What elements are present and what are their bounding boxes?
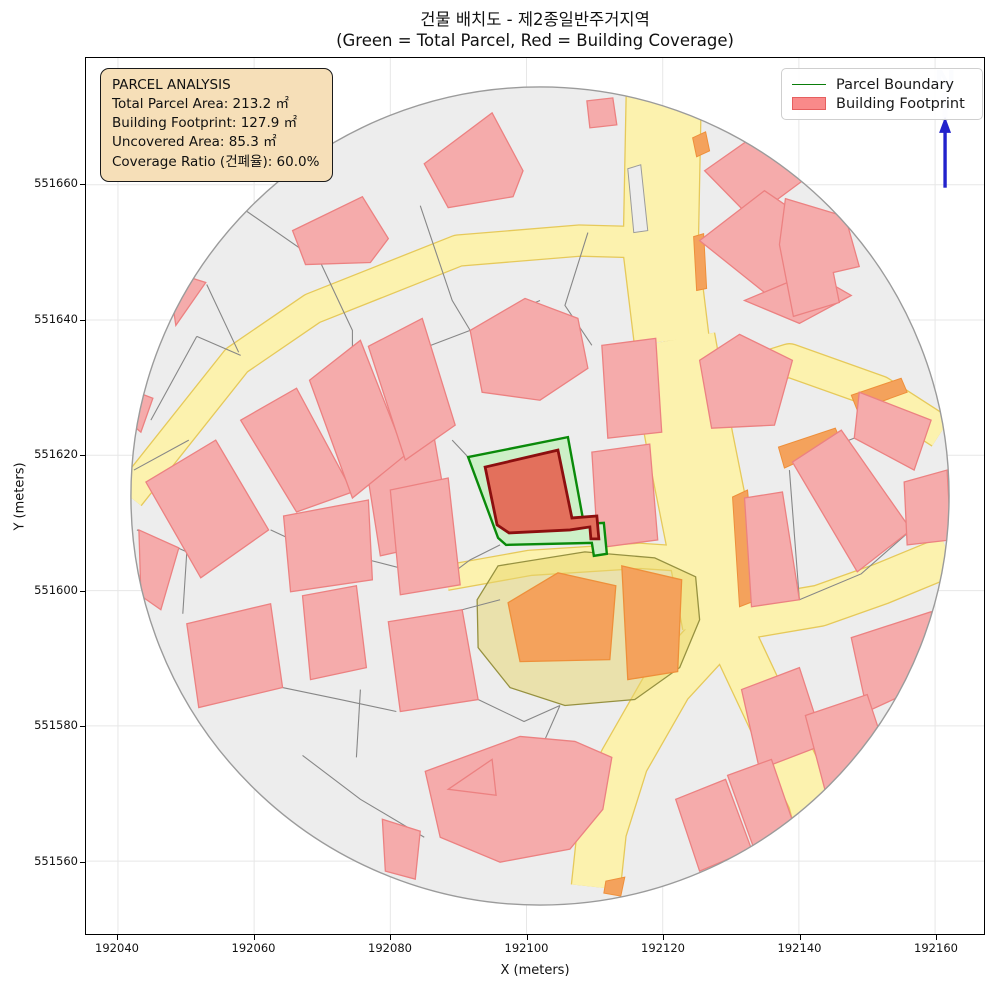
y-tick-mark [80,591,85,592]
parcel-boundary-line-swatch [792,84,826,85]
y-tick-mark [80,184,85,185]
y-tick-mark [80,320,85,321]
road [661,96,672,340]
building [904,470,951,545]
y-tick-mark [80,726,85,727]
chart-title: 건물 배치도 - 제2종일반주거지역 [85,6,985,30]
building [390,478,460,595]
x-tick-mark [117,935,118,940]
map-svg: N [86,58,984,934]
parcel-analysis-line: Uncovered Area: 85.3 ㎡ [112,133,319,152]
legend-item-building-footprint: Building Footprint [789,94,974,113]
y-axis-label: Y (meters) [13,447,28,547]
building [303,586,367,680]
y-tick-mark [80,862,85,863]
building [284,500,373,592]
legend-label: Parcel Boundary [836,77,954,93]
legend-label: Building Footprint [836,96,965,112]
x-tick-label: 192080 [350,941,430,955]
y-tick-label: 551600 [14,583,78,597]
x-tick-label: 192120 [623,941,703,955]
x-tick-mark [390,935,391,940]
x-tick-mark [527,935,528,940]
x-tick-mark [936,935,937,940]
parcel-analysis-box: PARCEL ANALYSIS Total Parcel Area: 213.2… [100,68,333,182]
figure: 건물 배치도 - 제2종일반주거지역 (Green = Total Parcel… [0,0,1001,990]
building [388,610,478,712]
x-tick-mark [254,935,255,940]
x-tick-label: 192040 [77,941,157,955]
building [602,338,662,438]
y-tick-label: 551640 [14,312,78,326]
x-tick-label: 192140 [760,941,840,955]
x-tick-mark [800,935,801,940]
plot-area: N [85,57,985,935]
building [587,98,617,128]
parcel-analysis-line: Building Footprint: 127.9 ㎡ [112,114,319,133]
parcel-analysis-line: Coverage Ratio (건폐율): 60.0% [112,153,319,172]
y-tick-label: 551560 [14,854,78,868]
x-axis-label: X (meters) [85,963,985,978]
x-tick-label: 192100 [487,941,567,955]
chart-subtitle: (Green = Total Parcel, Red = Building Co… [85,31,985,50]
legend: Parcel Boundary Building Footprint [781,68,983,120]
x-tick-label: 192160 [896,941,976,955]
y-tick-label: 551580 [14,718,78,732]
y-tick-label: 551660 [14,176,78,190]
building-footprint-patch-swatch [792,97,826,110]
parcel-analysis-lines: Total Parcel Area: 213.2 ㎡Building Footp… [112,95,319,172]
parcel-analysis-title: PARCEL ANALYSIS [112,76,319,95]
legend-item-parcel-boundary: Parcel Boundary [789,75,974,94]
orange-building [622,566,682,680]
x-tick-label: 192060 [214,941,294,955]
x-tick-mark [663,935,664,940]
parcel-analysis-line: Total Parcel Area: 213.2 ㎡ [112,95,319,114]
y-tick-mark [80,455,85,456]
